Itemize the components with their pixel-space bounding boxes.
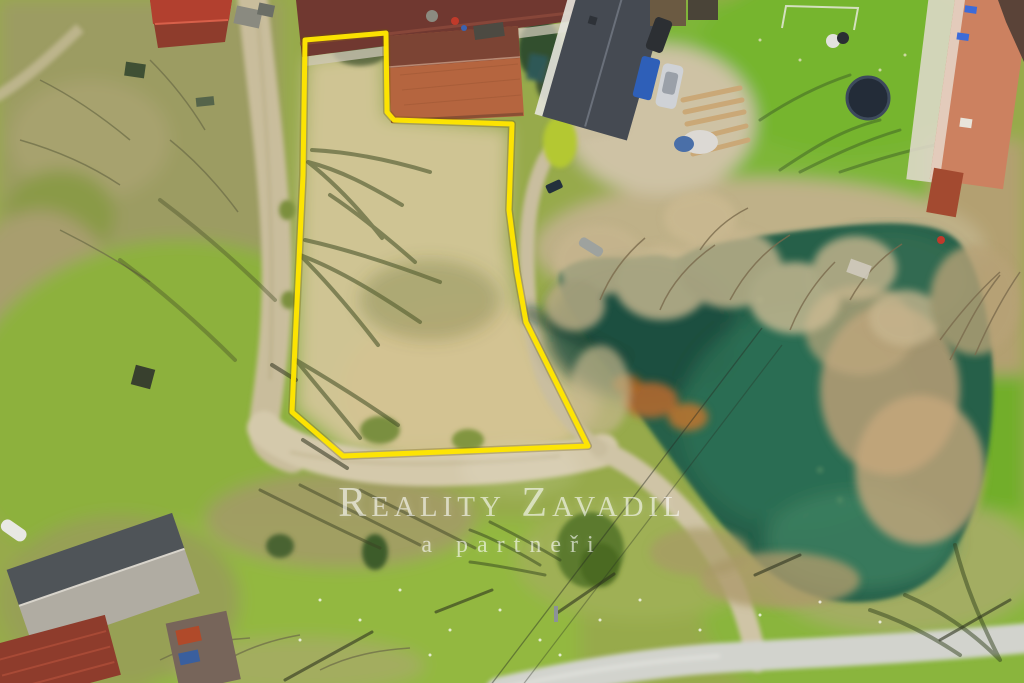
aerial-photo-canvas — [0, 0, 1024, 683]
utility-pole — [554, 606, 558, 622]
aerial-photo: Reality Zavadil a partneři — [0, 0, 1024, 683]
red-tile-barn — [387, 26, 524, 123]
trampoline — [847, 77, 889, 119]
